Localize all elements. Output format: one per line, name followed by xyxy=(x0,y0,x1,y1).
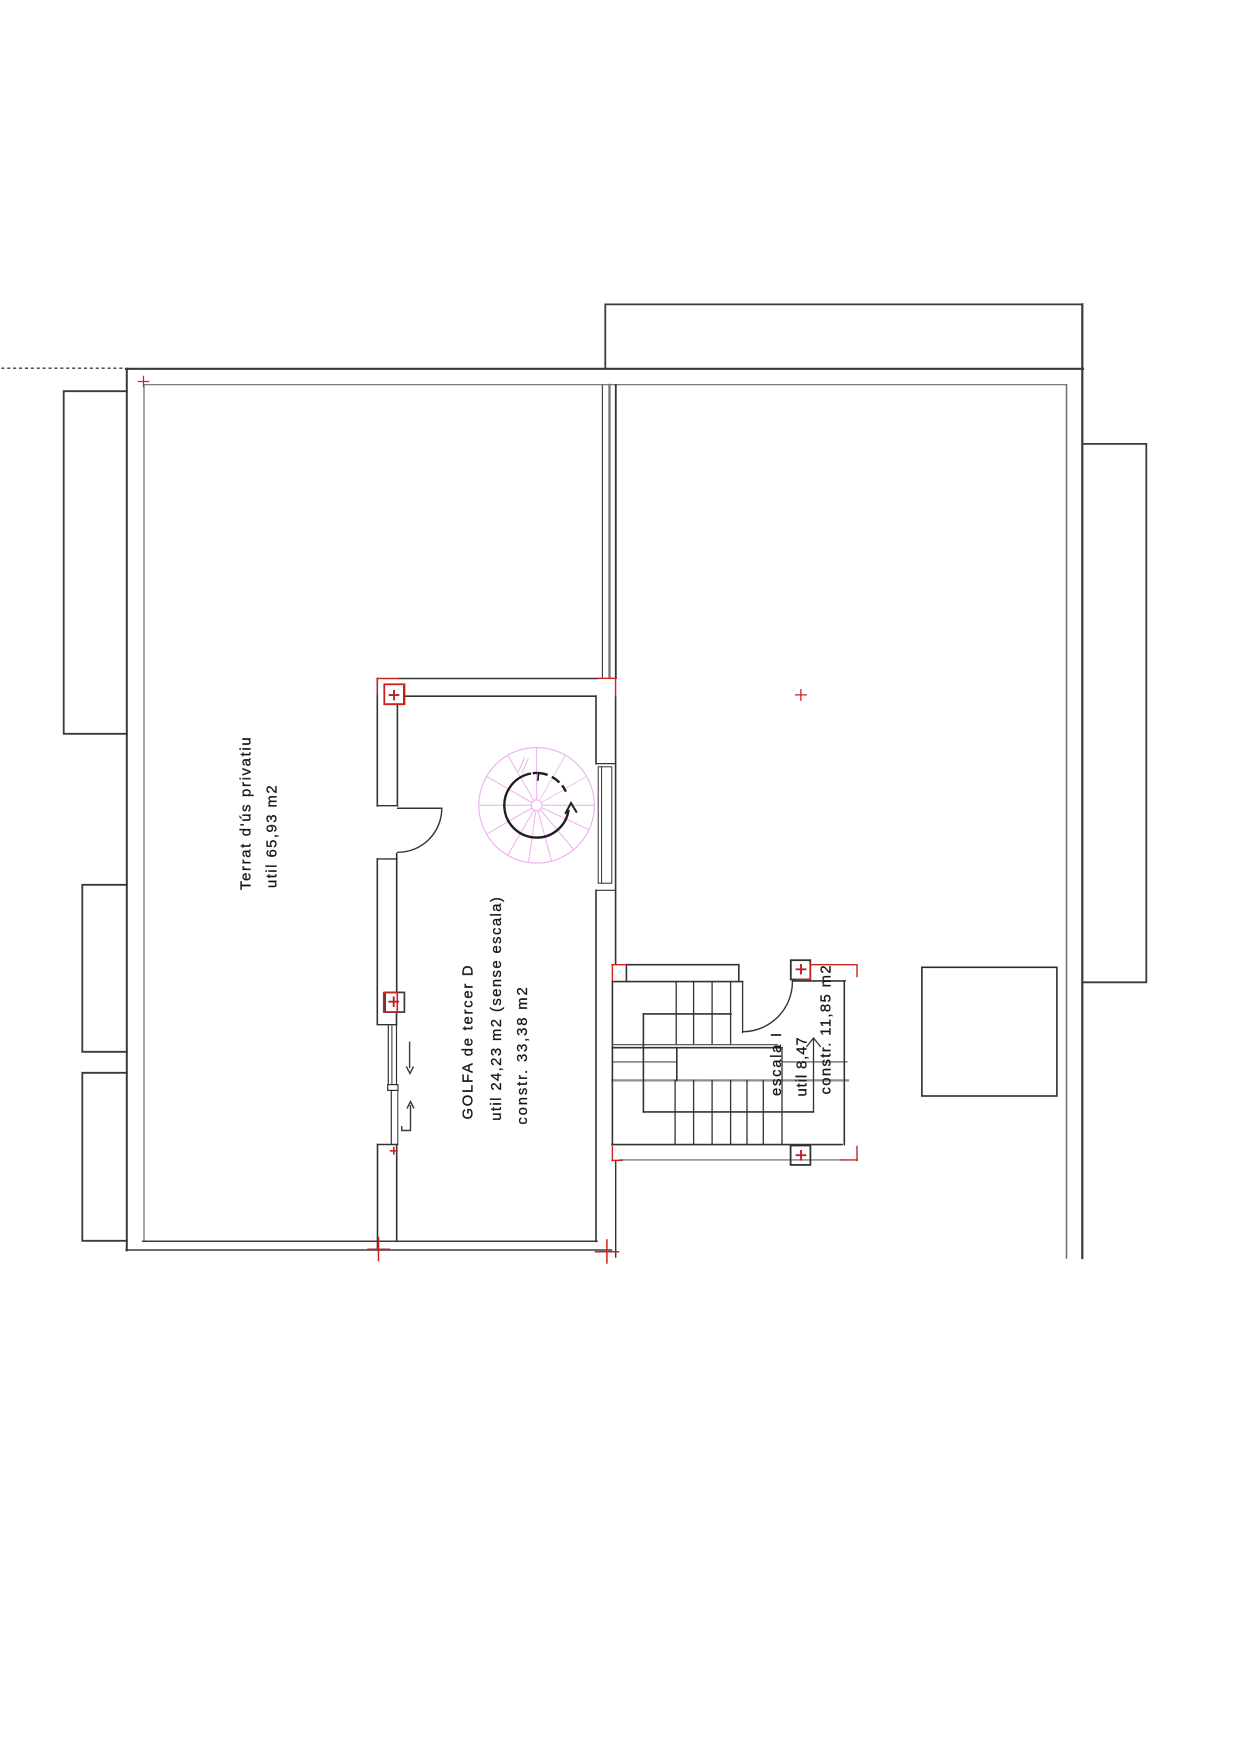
svg-text:escala I: escala I xyxy=(769,1033,785,1097)
svg-text:constr. 11,85 m2: constr. 11,85 m2 xyxy=(819,965,835,1095)
svg-text:GOLFA de tercer D: GOLFA de tercer D xyxy=(461,965,477,1120)
svg-text:Terrat d'ús privatiu: Terrat d'ús privatiu xyxy=(239,737,255,890)
svg-text:util 8,47: util 8,47 xyxy=(795,1037,811,1097)
svg-text:util 65,93 m2: util 65,93 m2 xyxy=(265,785,281,888)
svg-text:util 24,23 m2 (sense escala): util 24,23 m2 (sense escala) xyxy=(489,897,505,1121)
svg-text:constr. 33,38 m2: constr. 33,38 m2 xyxy=(515,987,531,1125)
